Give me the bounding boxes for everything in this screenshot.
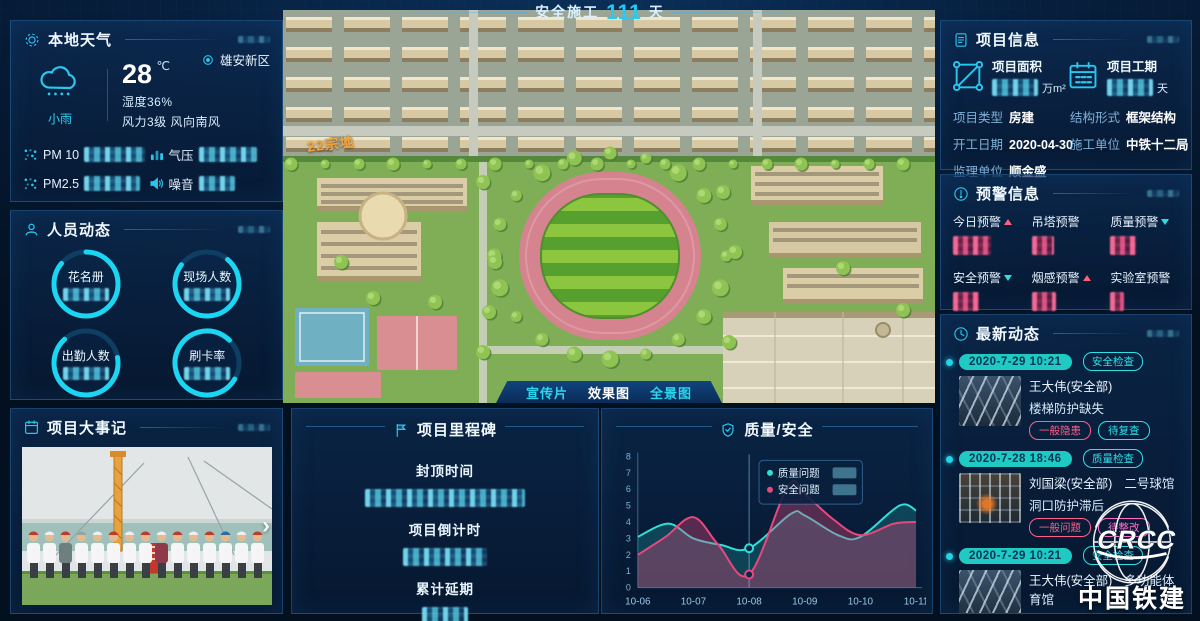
svg-text:3: 3 (626, 533, 631, 543)
field-contractor: 施工单位中铁十二局 (1070, 130, 1187, 157)
field-start-date: 开工日期2020-04-30 (953, 130, 1070, 157)
svg-text:2: 2 (626, 550, 631, 560)
alert-shield-icon (953, 186, 969, 202)
pm10-value (84, 147, 144, 162)
pressure-value (199, 147, 257, 162)
site-render-graphic (283, 10, 935, 403)
rain-cloud-icon (37, 63, 83, 103)
update-timestamp: 2020-7-28 18:46 (959, 451, 1072, 467)
field-structure: 结构形式框架结构 (1070, 103, 1187, 130)
ring-roster: 花名册 (25, 247, 147, 326)
wind: 风力3级 风向南风 (122, 113, 221, 130)
alert-lab-value (1110, 292, 1124, 311)
panel-personnel-dynamics: 人员动态 花名册 现场人数 出勤人数 刷卡率 (10, 210, 283, 400)
region-name: 雄安新区 (220, 50, 270, 69)
metric-noise: 噪音 (147, 169, 273, 198)
crcc-abbr: CRCC (1095, 525, 1180, 555)
svg-text:0: 0 (626, 583, 631, 593)
view-button-promo[interactable]: 宣传片 (526, 383, 568, 402)
status-tag: 待复查 (1098, 421, 1150, 440)
onsite-value (184, 288, 230, 301)
update-thumbnail[interactable] (959, 376, 1021, 426)
alert-safety: 安全预警 (953, 264, 1032, 320)
crcc-logo: CRCC 中国铁建 (1068, 496, 1196, 615)
project-duration-value (1107, 79, 1153, 96)
alert-quality: 质量预警 (1110, 208, 1189, 264)
safety-days-header: 安全施工 111 天 (0, 0, 1200, 24)
svg-text:6: 6 (626, 484, 631, 494)
personnel-panel-title: 人员动态 (47, 219, 111, 240)
project-area-value (992, 79, 1038, 96)
svg-text:安全问题: 安全问题 (778, 483, 820, 496)
panel-quality-safety: 质量/安全 01234567810-0610-0710-0810-0910-10… (601, 408, 933, 614)
crcc-globe-icon: CRCC (1084, 496, 1180, 588)
quality-safety-title: 质量/安全 (744, 419, 813, 440)
ring-onsite: 现场人数 (147, 247, 269, 326)
project-fields: 项目类型房建 结构形式框架结构 开工日期2020-04-30 施工单位中铁十二局… (941, 98, 1191, 184)
svg-text:10-07: 10-07 (681, 597, 707, 608)
stat-project-duration: 项目工期 天 (1066, 56, 1181, 96)
project-stats: 项目面积 万m² 项目工期 天 (941, 52, 1191, 98)
svg-text:10-11: 10-11 (904, 597, 926, 608)
alerts-panel-title: 预警信息 (976, 183, 1040, 204)
svg-text:10-09: 10-09 (792, 597, 818, 608)
area-icon (951, 59, 985, 93)
alert-crane: 吊塔预警 (1032, 208, 1111, 264)
milestone-panel-title: 项目里程碑 (417, 419, 497, 440)
svg-text:10-06: 10-06 (625, 597, 651, 608)
location-pin-icon (201, 53, 215, 67)
shield-check-icon (720, 422, 736, 438)
alert-smoke: 烟感预警 (1032, 264, 1111, 320)
safety-days-prefix: 安全施工 (535, 2, 599, 22)
ring-attendance: 出勤人数 (25, 326, 147, 405)
calendar-page-icon (23, 419, 40, 436)
clock-icon (953, 326, 969, 342)
metric-pm10: PM 10 (21, 140, 147, 169)
svg-text:10-10: 10-10 (848, 597, 874, 608)
alert-crane-value (1032, 236, 1054, 255)
update-timestamp: 2020-7-29 10:21 (959, 354, 1072, 370)
safety-days-count: 111 (606, 2, 642, 23)
document-icon (953, 32, 969, 48)
flag-icon (393, 422, 409, 438)
personnel-rings: 花名册 现场人数 出勤人数 刷卡率 (11, 245, 282, 407)
events-panel-title: 项目大事记 (47, 417, 127, 438)
svg-text:8: 8 (626, 451, 631, 461)
quality-safety-chart[interactable]: 01234567810-0610-0710-0810-0910-1010-11质… (602, 444, 932, 614)
calendar-icon (1066, 59, 1100, 93)
metric-pressure: 气压 (147, 140, 273, 169)
panel-project-milestone: 项目里程碑 封顶时间 项目倒计时 累计延期 (291, 408, 599, 614)
speaker-icon (149, 177, 164, 190)
humidity: 湿度36% (122, 93, 221, 110)
update-thumbnail[interactable] (959, 570, 1021, 614)
update-category: 安全检查 (1083, 352, 1143, 371)
svg-text:1: 1 (626, 566, 631, 576)
weather-panel-title: 本地天气 (48, 29, 112, 50)
swipe-rate-value (184, 367, 230, 380)
panel-project-milestones-photos: 项目大事记 › (10, 408, 283, 614)
hazard-tag: 一般隐患 (1029, 421, 1091, 440)
svg-text:7: 7 (626, 468, 631, 478)
project-info-title: 项目信息 (976, 29, 1040, 50)
svg-text:质量问题: 质量问题 (778, 466, 820, 479)
svg-text:4: 4 (626, 517, 631, 527)
alert-today: 今日预警 (953, 208, 1032, 264)
event-photo[interactable]: › (22, 447, 272, 605)
gear-icon (23, 31, 41, 49)
alert-smoke-value (1032, 292, 1056, 311)
updates-panel-title: 最新动态 (976, 323, 1040, 344)
alert-today-value (953, 236, 991, 255)
pm25-value (84, 176, 140, 191)
svg-text:5: 5 (626, 501, 631, 511)
view-switcher: 宣传片 效果图 全景图 (496, 381, 722, 403)
countdown-value (403, 548, 487, 566)
update-category: 质量检查 (1083, 449, 1143, 468)
panel-local-weather: 本地天气 雄安新区 小雨 28 ℃ 湿度36% 风力3级 风向南风 (10, 20, 283, 202)
crcc-name: 中国铁建 (1068, 579, 1196, 615)
alert-safety-value (953, 292, 979, 311)
alerts-grid: 今日预警 吊塔预警 质量预警 安全预警 烟感预警 实验室预警 (941, 206, 1191, 320)
particles-icon (23, 148, 38, 161)
carousel-next-button[interactable]: › (262, 512, 270, 540)
person-icon (23, 221, 40, 238)
update-thumbnail[interactable] (959, 473, 1021, 523)
panel-project-info: 项目信息 项目面积 万m² 项目工期 (940, 20, 1192, 170)
metric-pm25: PM2.5 (21, 169, 147, 198)
safety-days-unit: 天 (649, 2, 665, 22)
particles-icon (23, 177, 38, 190)
milestone-rows: 封顶时间 项目倒计时 累计延期 (292, 444, 598, 621)
svg-text:10-08: 10-08 (736, 597, 762, 608)
view-button-panorama[interactable]: 全景图 (650, 383, 692, 402)
update-timestamp: 2020-7-29 10:21 (959, 548, 1072, 564)
view-button-render[interactable]: 效果图 (588, 383, 630, 402)
panel-alerts: 预警信息 今日预警 吊塔预警 质量预警 安全预警 烟感预警 实验室预警 (940, 174, 1192, 310)
ring-swipe-rate: 刷卡率 (147, 326, 269, 405)
weather-condition: 小雨 (27, 110, 93, 127)
noise-value (199, 176, 235, 191)
update-item: 2020-7-29 10:21 安全检查 王大伟(安全部) 楼梯防护缺失 一般隐… (941, 347, 1191, 444)
stat-project-area: 项目面积 万m² (951, 56, 1066, 96)
pressure-icon (149, 148, 164, 161)
topping-out-date-value (365, 489, 525, 507)
delay-value (422, 607, 468, 621)
site-3d-render[interactable]: 22宗地 宣传片 效果图 全景图 (283, 10, 935, 403)
attendance-value (63, 367, 109, 380)
group-photo-graphic (22, 447, 272, 605)
air-metrics: PM 10 气压 PM2.5 噪音 (11, 132, 282, 198)
field-project-type: 项目类型房建 (953, 103, 1070, 130)
region-selector[interactable]: 雄安新区 (201, 50, 270, 69)
alert-quality-value (1110, 236, 1136, 255)
roster-value (63, 288, 109, 301)
alert-lab: 实验室预警 (1110, 264, 1189, 320)
